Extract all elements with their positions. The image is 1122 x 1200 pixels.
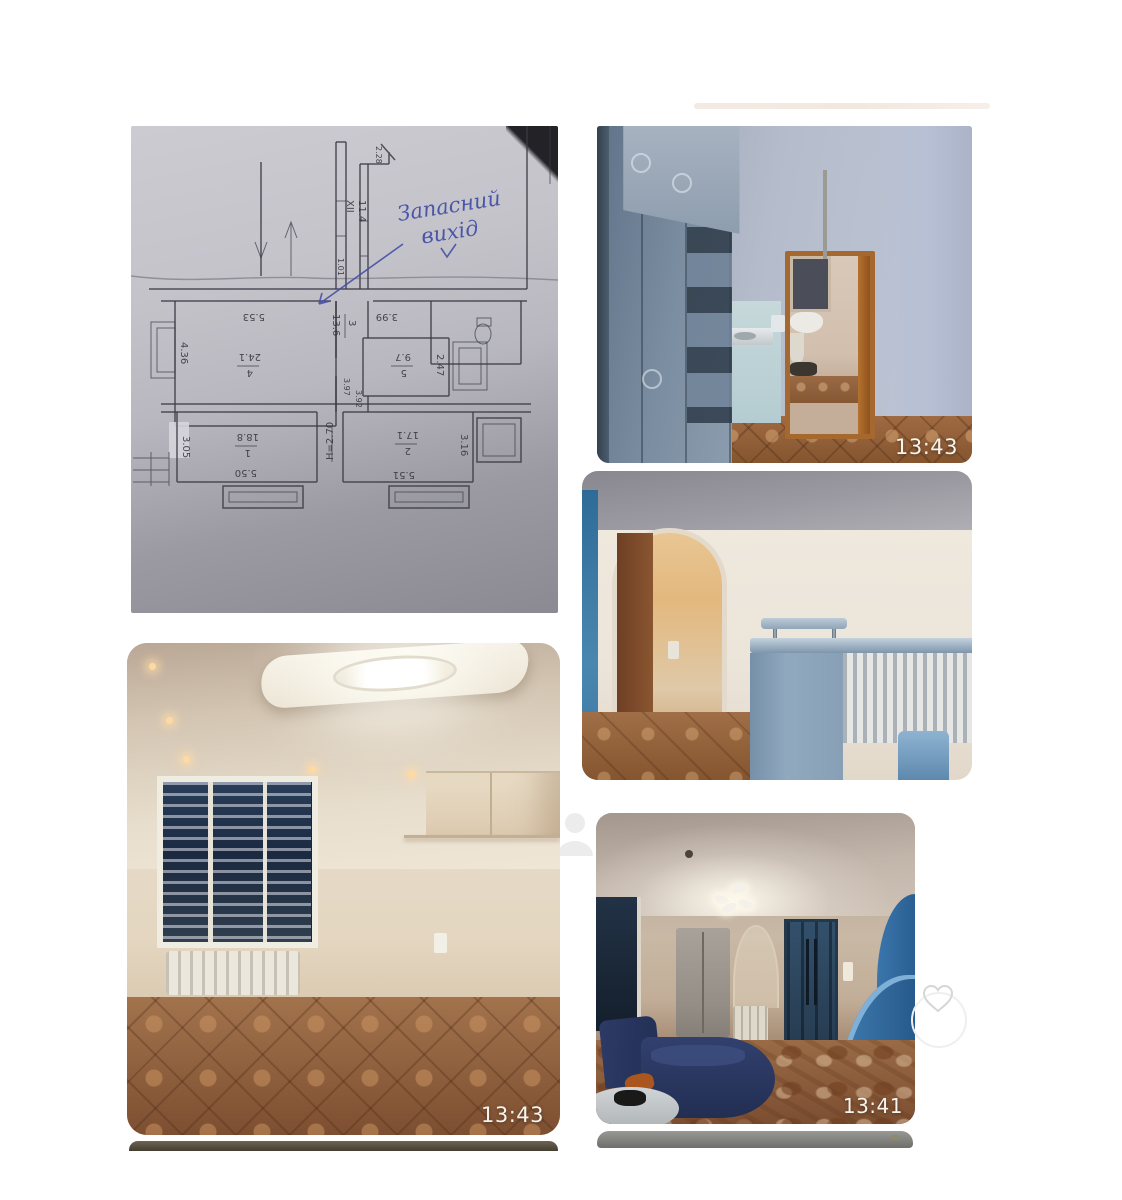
- window-with-blinds: [157, 776, 317, 948]
- hall-right-wall: [860, 126, 973, 463]
- spotlight: [149, 663, 156, 670]
- photo-hallway-kitchen[interactable]: 13:43: [597, 126, 972, 463]
- plaster-ceiling-panel: [260, 643, 531, 709]
- arched-niche: [733, 925, 778, 1008]
- bathroom-sink: [790, 312, 824, 333]
- photo-above-edge: [694, 103, 990, 109]
- sink-pedestal: [790, 333, 804, 362]
- bathroom-doorway: [785, 251, 875, 440]
- svg-text:3.92: 3.92: [354, 390, 363, 408]
- radiator: [166, 951, 300, 995]
- light-switch: [668, 641, 680, 660]
- svg-text:2.47: 2.47: [434, 354, 445, 376]
- svg-text:1: 1: [245, 447, 251, 458]
- wall-shelf: [404, 835, 560, 838]
- bar-counter-front: [750, 653, 844, 780]
- svg-text:5.53: 5.53: [243, 311, 265, 322]
- photo-empty-room[interactable]: 13:43: [127, 643, 560, 1135]
- light-switch: [843, 962, 853, 981]
- ceiling: [596, 813, 915, 916]
- photo-timestamp: 13:43: [481, 1103, 544, 1127]
- round-ceiling-lamp: [333, 652, 459, 695]
- svg-text:4.36: 4.36: [178, 342, 189, 364]
- upper-wall-cabinet: [426, 771, 560, 837]
- svg-text:3.05: 3.05: [180, 436, 191, 458]
- cabinet-handle: [631, 153, 651, 173]
- exit-arrow: [319, 244, 403, 304]
- window: [596, 897, 641, 1031]
- room-3-label: 3 13.6: [330, 314, 357, 338]
- photo-bar-room[interactable]: [582, 471, 972, 780]
- bathroom-floor: [790, 376, 870, 403]
- bar-upper-shelf: [761, 618, 847, 629]
- room-2-label: 2 17.1: [395, 429, 419, 456]
- ceiling: [582, 471, 972, 530]
- room-tile-floor: [582, 712, 769, 780]
- photo-timestamp: 13:43: [895, 435, 958, 459]
- svg-text:2: 2: [405, 445, 411, 456]
- svg-text:9.7: 9.7: [395, 351, 411, 362]
- spotlight: [309, 766, 316, 773]
- dark-blue-door: [784, 919, 838, 1043]
- svg-text:XII: XII: [344, 200, 355, 213]
- svg-text:11.4: 11.4: [356, 200, 367, 222]
- open-door-leaf: [617, 533, 653, 729]
- bath-mat: [790, 362, 817, 376]
- next-photo-edge-left: [129, 1141, 558, 1151]
- room-1-label: 1 18.8: [235, 431, 259, 458]
- svg-text:3.99: 3.99: [376, 311, 398, 322]
- handwritten-note: Запасний вихід: [396, 186, 507, 252]
- next-photo-edge-right: [597, 1131, 913, 1148]
- photo-living-room[interactable]: 13:41: [596, 813, 915, 1124]
- fan-blade: [730, 883, 748, 895]
- cabinet-handle: [642, 369, 662, 389]
- corner-wardrobe: [676, 928, 730, 1037]
- open-shelves: [687, 227, 732, 422]
- floor-plan-drawing: 4 24.1 1 18.8 2 17.1 5 9.7 3: [131, 126, 558, 613]
- fan-blade: [736, 898, 754, 910]
- bar-counter-top: [750, 638, 972, 653]
- photo-timestamp: 13:41: [843, 1094, 903, 1118]
- svg-text:5.50: 5.50: [235, 467, 257, 478]
- svg-text:H=2.70: H=2.70: [325, 422, 336, 460]
- exit-arrow-small: [441, 244, 456, 257]
- svg-text:3.16: 3.16: [458, 434, 469, 456]
- room-4-label: 4 24.1: [237, 351, 261, 378]
- heart-icon[interactable]: [905, 976, 971, 1042]
- svg-text:18.8: 18.8: [237, 431, 259, 442]
- blind-section: [212, 782, 262, 942]
- svg-text:13.6: 13.6: [330, 314, 341, 336]
- blind-section: [267, 782, 311, 942]
- svg-text:24.1: 24.1: [239, 351, 261, 362]
- svg-text:17.1: 17.1: [397, 429, 419, 440]
- photo-floor-plan[interactable]: 4 24.1 1 18.8 2 17.1 5 9.7 3: [131, 126, 558, 613]
- bathroom-mirror: [790, 256, 831, 312]
- spotlight: [166, 717, 173, 724]
- svg-text:1.01: 1.01: [336, 258, 345, 276]
- svg-text:5.51: 5.51: [393, 469, 415, 480]
- svg-text:4: 4: [247, 367, 253, 378]
- ceiling-fan-light: [714, 885, 755, 913]
- window-mullion: [208, 782, 212, 942]
- thermostat-box: [434, 933, 447, 953]
- light-switch: [771, 315, 784, 332]
- blue-stool: [898, 731, 949, 780]
- window-mullion: [263, 782, 267, 942]
- svg-text:5: 5: [401, 367, 407, 378]
- radiator-grill-panel: [843, 653, 972, 743]
- svg-text:3: 3: [346, 320, 357, 326]
- svg-text:3.97: 3.97: [342, 378, 351, 396]
- room-5-label: 5 9.7: [391, 351, 413, 378]
- blind-section: [163, 782, 207, 942]
- messenger-photo-collage: 4 24.1 1 18.8 2 17.1 5 9.7 3: [0, 0, 1122, 1200]
- svg-text:2.28: 2.28: [374, 146, 383, 164]
